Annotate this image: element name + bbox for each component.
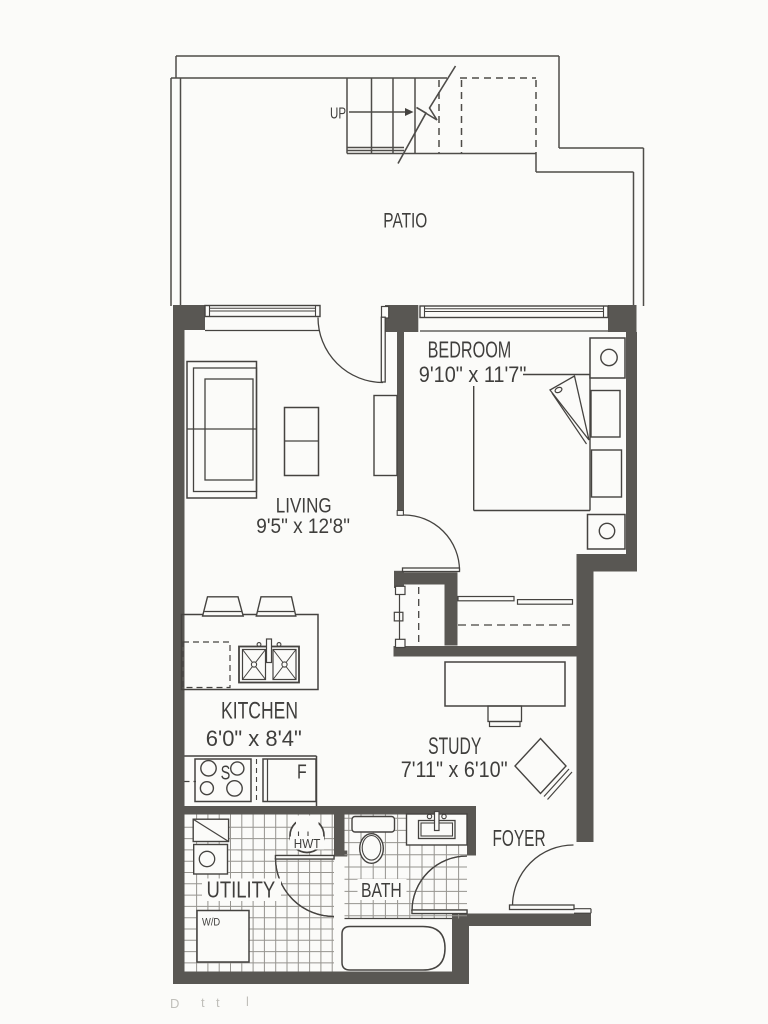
svg-text:6'0" x 8'4": 6'0" x 8'4": [206, 726, 302, 751]
svg-text:t: t: [216, 995, 220, 1010]
svg-text:UP: UP: [330, 105, 346, 122]
svg-text:l: l: [246, 994, 249, 1009]
svg-text:7'11" x 6'10": 7'11" x 6'10": [401, 757, 508, 782]
svg-text:FOYER: FOYER: [493, 825, 546, 851]
svg-text:BATH: BATH: [361, 879, 402, 901]
svg-text:BEDROOM: BEDROOM: [428, 337, 512, 363]
svg-text:UTILITY: UTILITY: [207, 877, 276, 903]
svg-text:D: D: [170, 996, 179, 1011]
svg-text:PATIO: PATIO: [383, 208, 427, 232]
svg-text:W/D: W/D: [202, 916, 220, 928]
svg-text:S: S: [221, 762, 231, 784]
svg-text:9'5" x 12'8": 9'5" x 12'8": [256, 514, 350, 538]
svg-text:STUDY: STUDY: [428, 733, 481, 760]
svg-text:t: t: [201, 995, 205, 1010]
svg-text:KITCHEN: KITCHEN: [221, 698, 298, 725]
svg-text:HWT: HWT: [294, 836, 321, 851]
svg-text:9'10" x 11'7": 9'10" x 11'7": [419, 362, 527, 387]
svg-text:F: F: [297, 762, 307, 784]
